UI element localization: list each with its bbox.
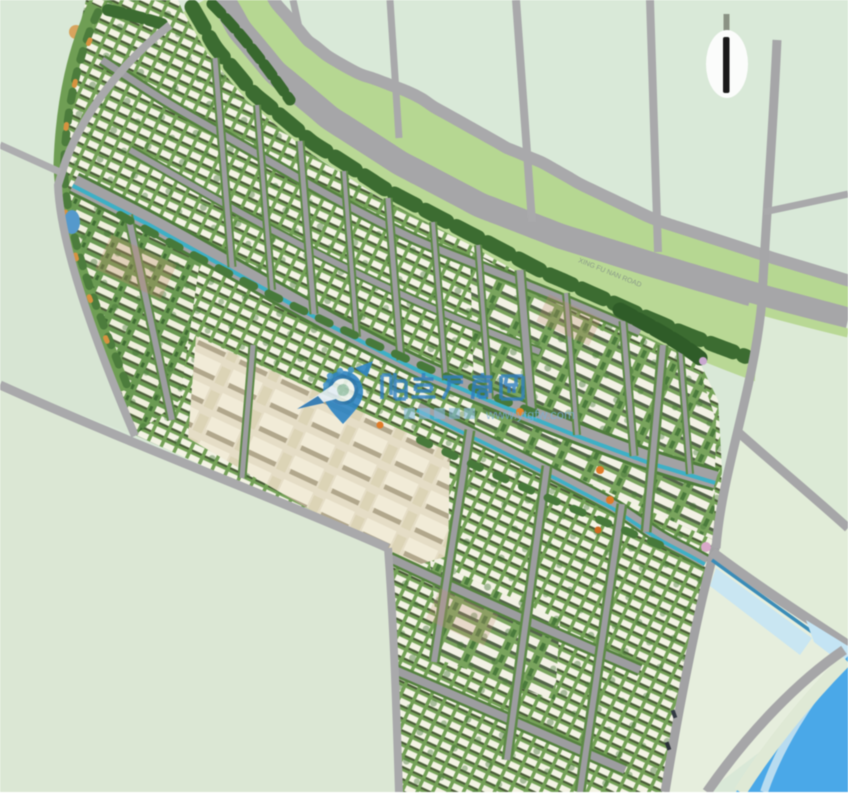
- svg-text:www.ytgfw.com: www.ytgfw.com: [485, 407, 575, 422]
